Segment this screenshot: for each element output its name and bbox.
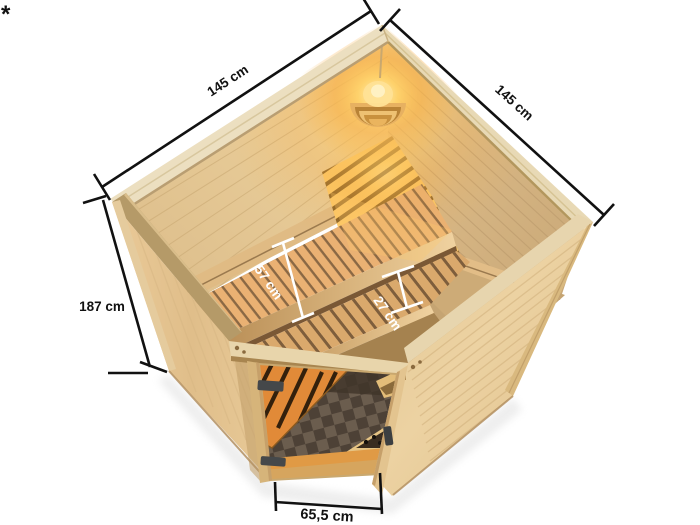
svg-text:187 cm: 187 cm bbox=[79, 299, 125, 314]
svg-text:*: * bbox=[1, 1, 11, 28]
svg-text:65,5 cm: 65,5 cm bbox=[300, 506, 354, 525]
